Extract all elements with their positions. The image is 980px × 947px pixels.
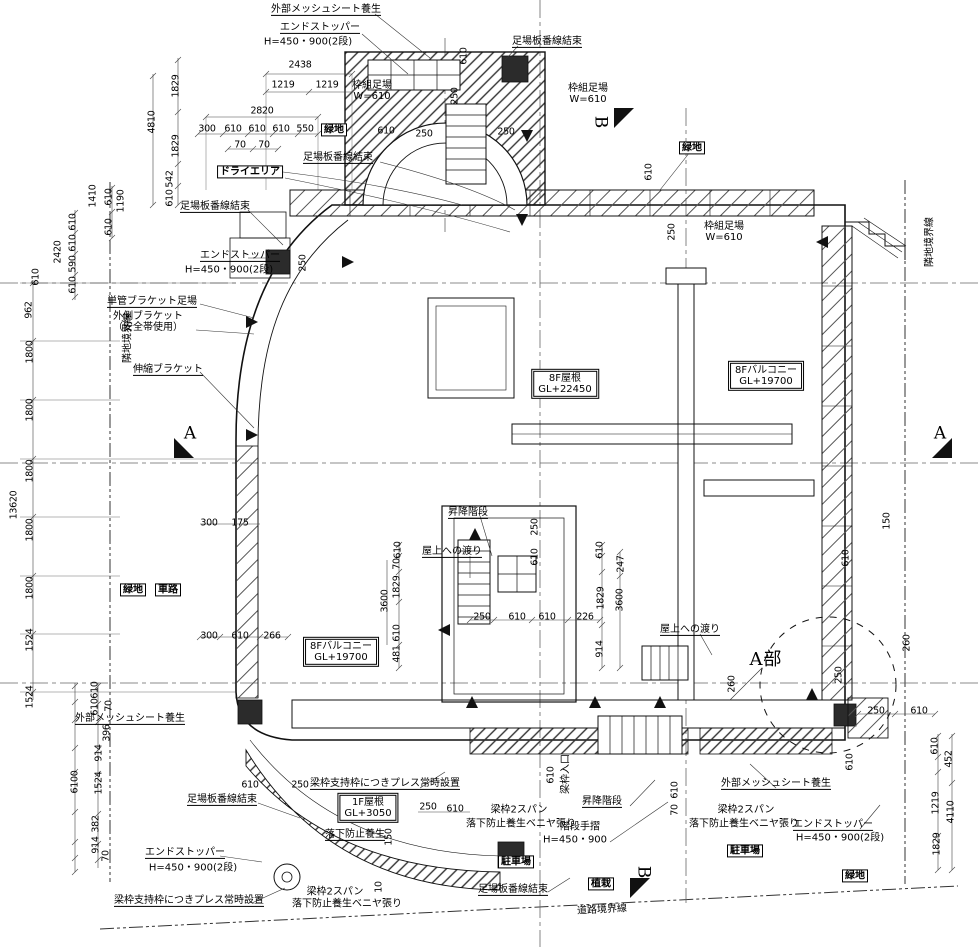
label-greenery-top-left: 緑地 [321,123,347,136]
dim-label: 610 [460,47,471,64]
dim-label: 610 [842,549,853,566]
dim-label: 610 [166,189,177,206]
dim-label: 914 [95,744,106,761]
label-frame-scaffold-top-right: 枠組足場 W=610 [568,83,608,105]
dim-label: 150 [385,828,396,845]
label-stair-handrail-size: H=450・900 [543,834,607,845]
dim-label: 610 [241,781,258,792]
dim-label: 1219 [272,81,295,92]
label-stair-handrail: 階段手摺 [560,821,600,832]
label-section-b-top: B [590,116,609,129]
dim-label: 1800 [26,577,37,600]
label-ext-bracket: 伸縮ブラケット [133,364,203,376]
dim-label: 250 [473,613,490,624]
dim-label: 610 [105,218,116,235]
dim-label: 250 [497,128,514,139]
label-frame-scaffold-right: 枠組足場 W=610 [704,221,744,243]
dim-label: 610 [231,632,248,643]
label-end-stopper-bl: エンドストッパー [145,847,225,859]
label-beam-press-bottom: 梁枠支持枠につきプレス常時設置 [114,895,264,907]
dim-label: 70 [102,850,113,862]
dim-label: 175 [231,519,248,530]
label-road-boundary: 道路境界線 [577,903,628,917]
dim-label: 1829 [172,135,183,158]
dim-label: 610 [508,613,525,624]
dim-label: 610 [393,624,404,641]
label-scaffold-tie-left: 足場板番線結束 [180,201,250,213]
label-fall-prevention: 落下防止養生 [325,829,385,841]
label-beam-2span-right: 梁枠2スパン [718,804,775,815]
label-end-stopper-bl-size: H=450・900(2段) [149,862,237,873]
dim-label: 962 [25,301,36,318]
dim-label: 610 [547,766,558,783]
label-greenery-br: 緑地 [842,869,868,882]
label-section-a-right: A [934,424,946,443]
dim-label: 1524 [95,772,106,795]
label-scaffold-tie-bl: 足場板番線結束 [187,794,257,806]
label-section-b-bottom: B [633,866,652,879]
dim-label: 70 [393,558,404,570]
dim-label: 1524 [26,629,37,652]
label-a-part: A部 [750,650,783,670]
dim-label: 70 [234,141,246,152]
dim-label: 1800 [26,519,37,542]
dim-label: 1829 [393,576,404,599]
label-end-stopper-top-size: H=450・900(2段) [264,36,352,47]
label-scaffold-tie-mid: 足場板番線結束 [303,152,373,164]
label-scaffold-tie-bc: 足場板番線結束 [478,884,548,896]
label-beam-press-top: 梁枠支持枠につきプレス常時設置 [310,778,460,790]
label-rooftop-pass-left: 屋上への渡り [422,546,482,558]
label-boundary-right: 隣地境界線 [924,217,935,267]
dim-label: 610 [394,541,405,558]
dim-label: 610 [91,681,102,698]
dim-label: 250 [867,707,884,718]
label-end-stopper-left-size: H=450・900(2段) [185,264,273,275]
dim-label: 10 [375,881,386,893]
label-lifting-stairs-bottom: 昇降階段 [582,796,622,808]
label-rooftop-pass-right: 屋上への渡り [660,624,720,636]
dim-label: 1829 [933,833,944,856]
label-beam-entrance: 梁枠入口 [560,754,571,794]
label-scaffold-tie-top: 足場板番線結束 [512,36,582,48]
dim-label: 250 [451,87,462,104]
dim-label: 610 [931,737,942,754]
dim-label: 1190 [117,190,128,213]
dim-label: 1829 [172,75,183,98]
label-end-stopper-br-size: H=450・900(2段) [796,832,884,843]
dim-label: 3600 [381,590,392,613]
label-roadway: 車路 [155,583,181,596]
dim-label: 70 [671,804,682,816]
label-end-stopper-top: エンドストッパー [280,22,360,34]
label-dry-area: ドライエリア [217,165,283,178]
dim-label: 4810 [148,111,159,134]
dim-label: 2438 [289,61,312,72]
dim-label: 610 [531,548,542,565]
dim-label: 1829 [597,587,608,610]
dim-label: 382 [92,815,103,832]
label-fall-veneer-bottom: 落下防止養生ベニヤ張り [292,898,402,909]
dim-label: 260 [903,634,914,651]
dim-label: 247 [617,555,628,572]
dim-label: 250 [531,518,542,535]
label-greenery-left: 緑地 [120,583,146,596]
label-pipe-bracket: 単管ブラケット足場 [107,296,197,308]
dim-label: 250 [299,254,310,271]
label-ext-mesh-sheet-bottom: 外部メッシュシート養生 [721,778,831,790]
dim-label: 250 [415,130,432,141]
dim-label: 1410 [89,185,100,208]
label-parking-right: 駐車場 [727,844,763,857]
dim-label: 250 [668,223,679,240]
label-parking-left: 駐車場 [498,855,534,868]
dim-label: 610 [596,541,607,558]
dim-label: 396 [103,724,114,741]
dim-label: 2820 [251,107,274,118]
dim-label: 6100 [71,771,82,794]
dim-label: 266 [263,632,280,643]
dim-label: 150 [883,512,894,529]
dim-label: 610 [910,707,927,718]
dim-label: 610 [377,127,394,138]
dim-label: 550 [296,125,313,136]
label-beam-2span-center: 梁枠2スパン [491,804,548,815]
label-8f-roof: 8F屋根 GL+22450 [531,369,599,399]
dim-label: 610 [105,188,116,205]
dim-label: 610 [69,234,80,251]
dim-label: 226 [576,613,593,624]
dim-label: 610 [272,125,289,136]
dim-label: 452 [945,750,956,767]
dim-label: 610 [645,163,656,180]
label-beam-2span-bottom: 梁枠2スパン [307,886,364,897]
dim-label: 250 [291,781,308,792]
label-end-stopper-left: エンドストッパー [200,250,280,262]
dim-label: 610 [69,276,80,293]
dim-label: 1219 [932,792,943,815]
dim-label: 3600 [616,589,627,612]
dim-label: 250 [835,666,846,683]
dim-label: 13620 [10,491,21,520]
label-greenery-top-right: 緑地 [679,141,705,154]
label-lifting-stairs-top: 昇降階段 [448,507,488,519]
label-fall-veneer-right: 落下防止養生ベニヤ張り [689,818,799,829]
label-8f-balcony-right: 8Fバルコニー GL+19700 [728,361,804,391]
label-planting: 植栽 [588,877,614,890]
labels-layer: 外部メッシュシート養生エンドストッパーH=450・900(2段)足場板番線結束2… [0,0,980,947]
dim-label: 70 [105,700,116,712]
label-ext-mesh-sheet-top: 外部メッシュシート養生 [271,4,381,16]
label-frame-scaffold-top-left: 枠組足場 W=610 [352,80,392,102]
dim-label: 914 [596,640,607,657]
label-1f-roof: 1F屋根 GL+3050 [337,793,398,823]
dim-label: 2420 [54,241,65,264]
dim-label: 610 [248,125,265,136]
dim-label: 300 [198,125,215,136]
dim-label: 250 [419,803,436,814]
dim-label: 300 [200,519,217,530]
dim-label: 610 [91,698,102,715]
dim-label: 610 [538,613,555,624]
dim-label: 1800 [26,399,37,422]
dim-label: 590 [69,255,80,272]
dim-label: 300 [200,632,217,643]
scaffolding-plan-drawing: 外部メッシュシート養生エンドストッパーH=450・900(2段)足場板番線結束2… [0,0,980,947]
label-8f-balcony-center: 8Fバルコニー GL+19700 [303,637,379,667]
label-section-a-left: A [184,424,196,443]
dim-label: 1800 [26,460,37,483]
dim-label: 1524 [26,686,37,709]
dim-label: 610 [846,753,857,770]
dim-label: 1219 [316,81,339,92]
label-boundary-left: 隣地境界線 [122,313,133,363]
label-end-stopper-br: エンドストッパー [793,819,873,831]
dim-label: 610 [671,781,682,798]
dim-label: 1800 [26,341,37,364]
dim-label: 610 [446,805,463,816]
dim-label: 542 [166,170,177,187]
dim-label: 70 [258,141,270,152]
dim-label: 610 [69,213,80,230]
dim-label: 610 [224,125,241,136]
dim-label: 610 [32,268,43,285]
dim-label: 4110 [947,801,958,824]
dim-label: 260 [728,675,739,692]
dim-label: 481 [393,645,404,662]
